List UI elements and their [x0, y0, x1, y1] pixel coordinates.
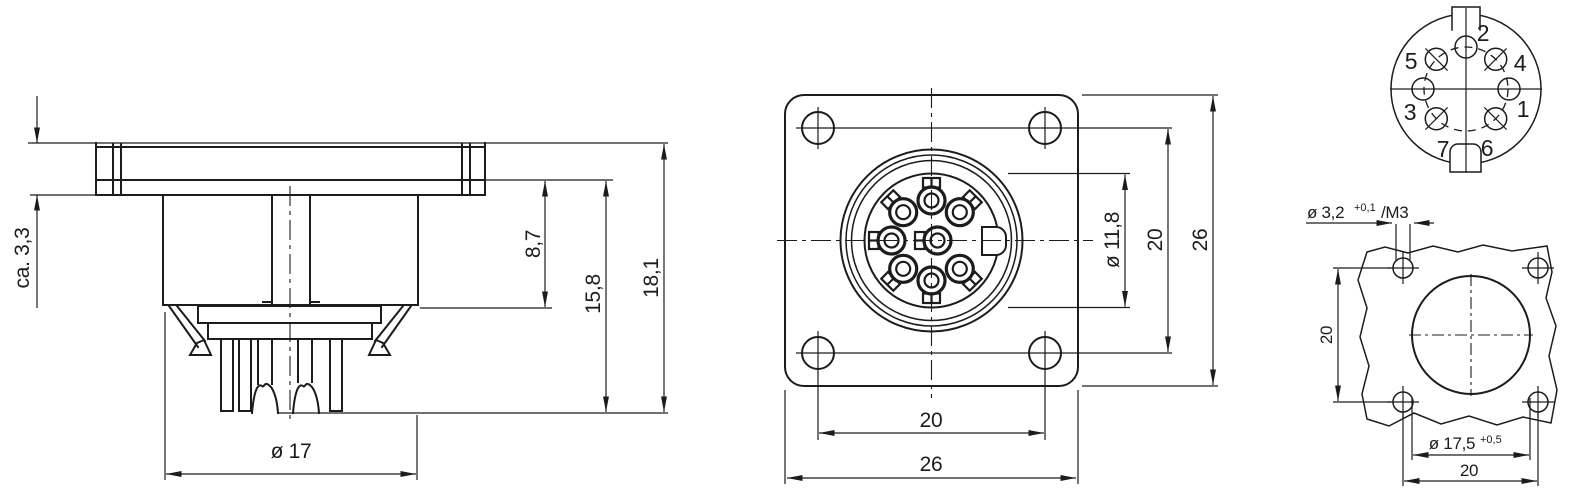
dim-total-height: 18,1	[640, 258, 663, 298]
solder-pin-edges	[258, 339, 312, 384]
flange-inner-verticals	[113, 144, 470, 195]
pin-label-1: 1	[1517, 96, 1530, 122]
connector-technical-drawing: ca. 3,3 8,7 15,8 18,1 ø 17	[0, 0, 1579, 493]
dim-insert-height: 15,8	[582, 274, 605, 314]
dim-screw-hole-thread: /M3	[1381, 203, 1408, 222]
dim-screw-hole-diameter: ø 3,2	[1307, 203, 1344, 222]
pin-label-7: 7	[1437, 136, 1450, 162]
clip-right-foot	[369, 340, 390, 355]
dim-hole-spacing-vertical: 20	[1317, 326, 1336, 344]
dim-cutout-tolerance: +0,5	[1480, 434, 1502, 446]
pinout-diagram: 2 5 4 3 1 7 6	[1390, 7, 1542, 172]
dim-flange-height: 26	[1189, 229, 1212, 252]
dim-flange-width: 26	[920, 453, 943, 476]
clip-left-foot	[190, 340, 211, 355]
dim-flange-thickness: ca. 3,3	[11, 228, 34, 289]
dim-body-diameter: ø 17	[271, 440, 312, 463]
solder-pin	[330, 339, 342, 411]
dim-screw-hole-tolerance: +0,1	[1354, 202, 1376, 214]
panel-cutout-view: ø 3,2 +0,1 /M3 20 ø 17,5 +0,5 20	[1306, 202, 1557, 486]
technical-drawing-page: ca. 3,3 8,7 15,8 18,1 ø 17	[0, 0, 1579, 493]
side-view: ca. 3,3 8,7 15,8 18,1 ø 17	[11, 96, 668, 480]
contact-arch	[252, 384, 278, 413]
dim-cutout-diameter: ø 17,5	[1429, 434, 1475, 453]
dim-hole-spacing-horizontal: 20	[1460, 461, 1478, 480]
extension-line	[1333, 268, 1391, 402]
pin-label-5: 5	[1405, 48, 1418, 74]
dim-hole-spacing-vertical: 20	[1144, 229, 1167, 252]
pin-label-2: 2	[1477, 20, 1490, 46]
dim-step-height: 8,7	[522, 230, 545, 258]
front-view: ø 11,8 20 26 20 26	[777, 88, 1218, 484]
solder-pin	[221, 339, 233, 411]
solder-pin	[239, 339, 251, 411]
dim-hole-spacing-horizontal: 20	[920, 409, 943, 432]
center-tube	[263, 195, 319, 303]
pin-label-3: 3	[1404, 99, 1417, 125]
pin-label-6: 6	[1481, 135, 1494, 161]
centerline	[1409, 274, 1533, 396]
pin-label-4: 4	[1514, 50, 1527, 76]
contact-arch	[293, 384, 319, 413]
dim-recess-diameter: ø 11,8	[1101, 212, 1124, 268]
